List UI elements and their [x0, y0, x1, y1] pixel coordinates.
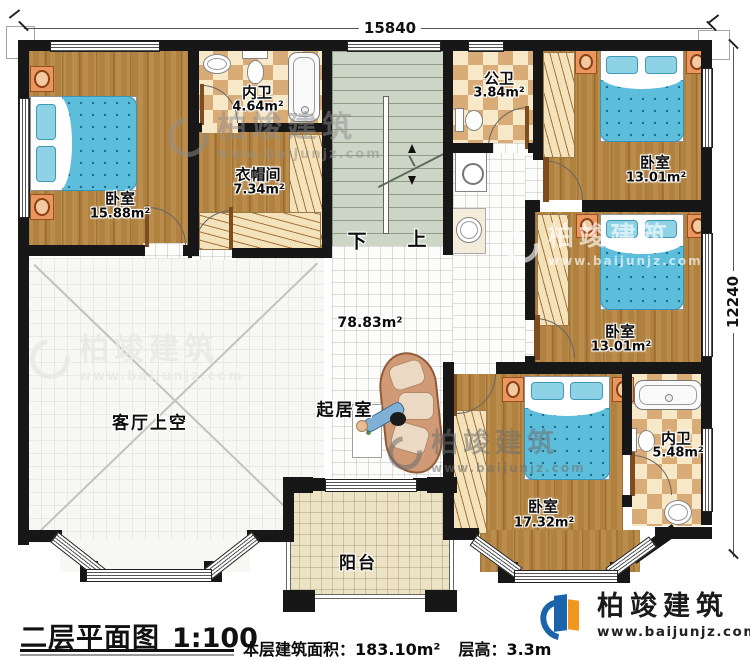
corner-slash — [9, 9, 20, 19]
toilet-tank — [455, 108, 464, 132]
balcony-pillar — [283, 590, 315, 612]
stair-arrow-down — [408, 176, 416, 185]
wall-bath-cloak-divider — [188, 123, 202, 132]
label-cloakroom-area: 7.34m² — [233, 183, 284, 198]
bed-pillow — [606, 220, 638, 238]
stair-railing — [383, 96, 389, 234]
dimension-width-label: 15840 — [359, 19, 421, 37]
balcony-pillar — [425, 590, 457, 612]
wall-bedroomMR-left — [525, 212, 535, 320]
bed-pillow — [645, 56, 677, 74]
wall-ensuiteBR-left — [622, 495, 632, 507]
bed-pillow — [36, 146, 56, 182]
balcony-railing — [313, 594, 427, 599]
door-threshold — [525, 156, 543, 204]
door-leaf — [229, 207, 233, 250]
door-leaf — [534, 315, 540, 360]
title-underline — [20, 649, 234, 652]
washing-machine — [455, 152, 487, 192]
label-balcony: 阳台 — [339, 549, 377, 574]
stair-down-label: 下 — [347, 227, 366, 254]
brand-website: www.baijunjz.com — [597, 624, 750, 640]
nightstand — [575, 50, 597, 74]
bed-pillow — [36, 104, 56, 140]
toilet — [465, 110, 483, 131]
window-top-bedroom — [50, 41, 160, 52]
wardrobe — [453, 410, 487, 534]
door-leaf — [200, 84, 204, 125]
wall-bedroomTL-bottom — [18, 245, 145, 256]
sink — [664, 500, 692, 525]
label-ensuite-top-area: 4.64m² — [232, 100, 283, 115]
bed-pillow — [570, 382, 603, 400]
bed-pillow — [645, 220, 677, 238]
label-family-room: 起居室 — [317, 396, 374, 421]
stair-up-label: 上 — [407, 225, 426, 252]
round-sink — [456, 217, 482, 243]
sink — [203, 54, 231, 74]
wall-void-balcony — [283, 490, 294, 542]
label-bedroomTL-name: 卧室 — [105, 188, 135, 209]
wall-cloakroom-right — [322, 50, 332, 258]
wall-bedroomTL-right — [188, 50, 199, 255]
corner-slash — [708, 14, 719, 24]
label-public-bath-area: 3.84m² — [473, 86, 524, 101]
wall-bath-cloak-divider — [238, 123, 322, 132]
window-top-stairs — [347, 41, 441, 52]
nightstand — [30, 194, 54, 220]
balcony-door-window — [325, 479, 417, 492]
bed-quilt — [600, 80, 684, 142]
bay-window-front — [514, 570, 618, 583]
title-underline-2 — [20, 654, 234, 656]
label-bedroomBR-area: 17.32m² — [514, 516, 574, 531]
label-hall-area: 78.83m² — [337, 315, 402, 331]
balcony-pillar — [427, 477, 457, 493]
balcony-railing — [286, 540, 291, 594]
floor-stats: 本层建筑面积：183.10m²层高：3.3m — [243, 636, 569, 660]
nightstand — [30, 66, 54, 92]
floor-plan-canvas: 15840 12240 — [0, 0, 750, 660]
bed-quilt — [600, 246, 684, 310]
bed-pillow — [606, 56, 638, 74]
wall-publicbath-bottom — [443, 143, 493, 153]
window-right-bedroom-tr — [702, 68, 713, 148]
label-bedroomTR-area: 13.01m² — [626, 171, 686, 186]
bed-quilt — [62, 96, 137, 191]
stair-arrow-up — [408, 144, 416, 153]
toilet-tank — [242, 50, 268, 59]
door-threshold — [143, 243, 187, 258]
wall-hall-bedroomTR — [533, 40, 543, 160]
bed-pillow — [531, 382, 564, 400]
wardrobe — [537, 214, 569, 326]
brand-name: 柏竣建筑 — [597, 592, 750, 622]
person-head — [356, 420, 368, 432]
window-right-ensuite — [702, 428, 713, 512]
balcony-pillar — [283, 477, 313, 493]
bathtub — [288, 52, 320, 122]
wall-bedroomTR-MR — [525, 200, 540, 212]
label-bedroomBR-name: 卧室 — [528, 496, 558, 517]
wardrobe — [543, 52, 575, 158]
wall-ensuiteBR-left — [622, 374, 632, 455]
brand-logo-icon — [538, 592, 590, 646]
dimension-height-label: 12240 — [724, 271, 742, 333]
nightstand — [576, 214, 598, 238]
label-bedroomMR-area: 13.01m² — [591, 340, 651, 355]
bathtub — [634, 380, 702, 410]
door-leaf — [543, 157, 549, 202]
bay-window-front — [86, 569, 212, 582]
label-ensuite-bottom-area: 5.48m² — [652, 446, 703, 461]
sofa-throw-pillow — [390, 412, 406, 426]
label-bedroomTL-area: 15.88m² — [90, 207, 150, 222]
label-cloakroom-name: 衣帽间 — [235, 164, 280, 185]
nightstand — [502, 377, 524, 402]
floor-area-text: 本层建筑面积：183.10m² — [243, 640, 440, 659]
wall-cloakroom-bottom — [232, 248, 332, 258]
label-living-void: 客厅上空 — [112, 409, 188, 434]
floor-balcony — [288, 490, 452, 598]
bed-quilt — [524, 408, 610, 480]
toilet — [247, 60, 264, 84]
label-bedroomTR-name: 卧室 — [640, 152, 670, 173]
wall-bedroomBR-left — [443, 362, 454, 540]
door-leaf — [630, 452, 635, 496]
label-bedroomMR-name: 卧室 — [605, 321, 635, 342]
window-right-bedroom-mr — [702, 233, 713, 357]
brand-logo: 柏竣建筑 www.baijunjz.com — [538, 592, 750, 646]
window-public-bath — [468, 41, 504, 52]
wall-bedroomTR-MR — [582, 200, 712, 212]
door-threshold — [202, 123, 238, 133]
wall-cloakroom-bottom — [188, 248, 192, 258]
window-left-bedroom — [19, 98, 30, 218]
wall-bedroomBR-top — [496, 362, 712, 374]
